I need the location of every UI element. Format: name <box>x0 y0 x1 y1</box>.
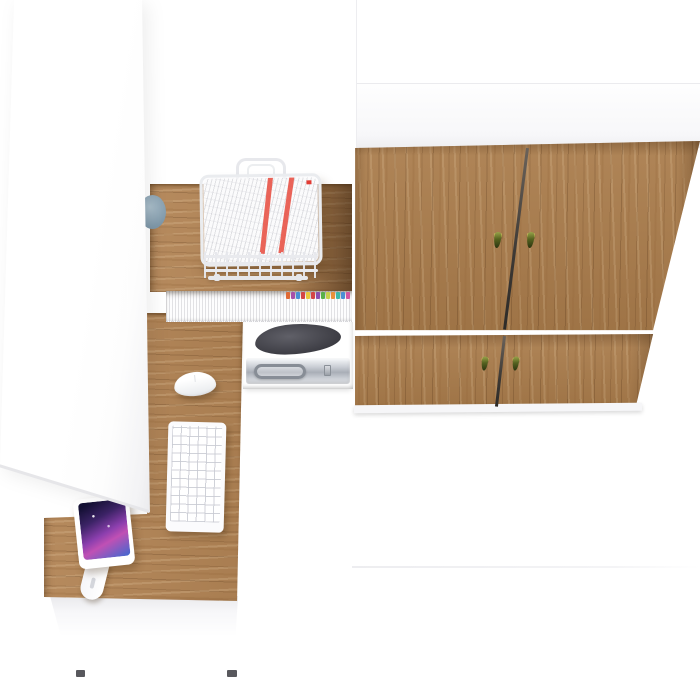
document-red-stripe <box>260 177 273 254</box>
file-tab <box>331 292 335 299</box>
tray-wire-bar <box>204 255 318 258</box>
aluminum-case <box>246 358 350 384</box>
handle-tassel <box>526 232 535 249</box>
file-tab <box>296 292 300 299</box>
file-tab <box>326 292 330 299</box>
keyboard <box>166 421 227 532</box>
case-handle <box>254 364 306 379</box>
file-tab <box>341 292 345 299</box>
tall-cabinet-right <box>352 0 700 580</box>
tray-papers <box>203 177 318 263</box>
tray-base <box>208 276 308 280</box>
file-tab <box>286 292 290 299</box>
upper-left-door-handle <box>494 233 504 257</box>
wardrobe-top-face <box>0 0 153 522</box>
document-tray <box>196 148 326 288</box>
cabinet-crown-panel <box>356 84 700 148</box>
scene-canvas <box>0 0 700 677</box>
handle-tassel <box>481 356 489 371</box>
keyboard-keys <box>170 425 222 522</box>
handle-tassel <box>512 356 520 371</box>
handle-tassel <box>493 232 502 249</box>
tray-wire-bar <box>204 269 318 272</box>
file-tab <box>321 292 325 299</box>
hutch-shelf-unit <box>243 322 353 389</box>
drawer-unit <box>50 596 239 677</box>
tray-wire-bar <box>204 262 318 265</box>
upper-right-door-handle <box>527 233 537 257</box>
case-latch <box>324 365 331 376</box>
cabinet-foot <box>76 670 85 677</box>
wardrobe-left <box>0 0 153 522</box>
floor-shadow-line <box>352 566 700 568</box>
document-red-mark <box>306 180 311 184</box>
arm-slot <box>89 577 96 589</box>
file-tabs <box>286 292 350 299</box>
file-tab <box>306 292 310 299</box>
file-tab <box>301 292 305 299</box>
file-tab <box>346 292 350 299</box>
lower-right-door-handle <box>513 357 522 378</box>
file-tab <box>316 292 320 299</box>
file-tab <box>311 292 315 299</box>
cabinet-baseboard <box>354 403 642 414</box>
cabinet-top-face <box>356 0 700 84</box>
document-red-stripe <box>278 177 294 253</box>
dark-bag <box>254 322 341 356</box>
file-tab <box>336 292 340 299</box>
lower-left-door-handle <box>482 357 491 378</box>
file-tab <box>291 292 295 299</box>
file-shelf <box>166 291 352 322</box>
cabinet-foot <box>227 670 237 677</box>
